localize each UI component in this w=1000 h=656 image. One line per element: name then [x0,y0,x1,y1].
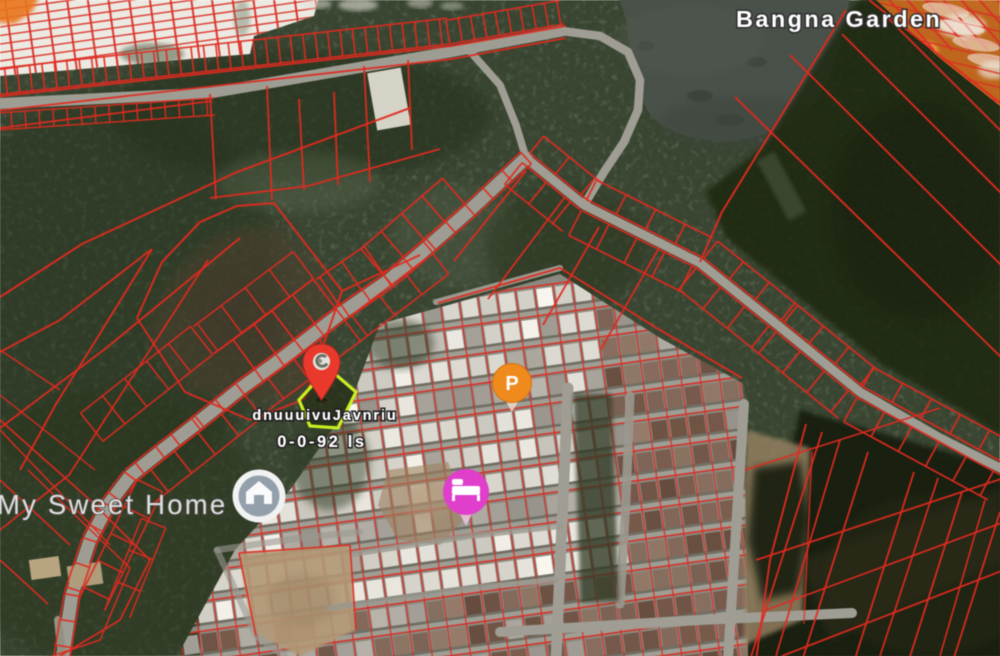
svg-text:0-0-92 ls: 0-0-92 ls [277,433,366,451]
svg-text:P: P [505,373,518,395]
svg-text:My Sweet Home: My Sweet Home [0,489,227,520]
svg-text:Bangna Garden: Bangna Garden [736,6,942,32]
svg-text:dnuuuivuJavnriu: dnuuuivuJavnriu [252,408,397,424]
